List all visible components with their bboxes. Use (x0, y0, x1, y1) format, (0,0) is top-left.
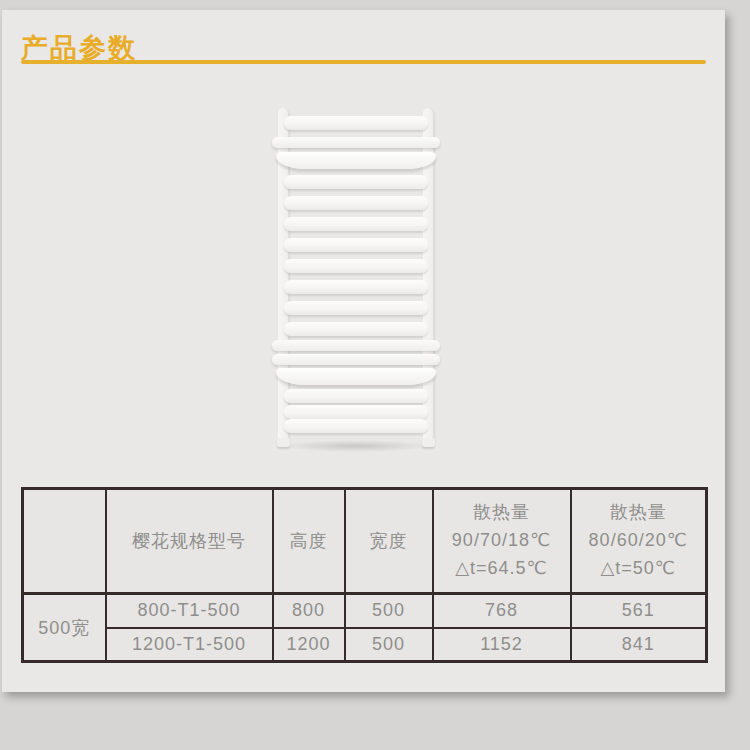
radiator-towel-rail-bottom-1 (272, 340, 440, 351)
radiator-bar (284, 175, 428, 189)
table-row: 500宽 800-T1-500 800 500 768 561 (23, 594, 707, 628)
title-underline (21, 60, 706, 64)
page-background: { "page": { "title": "产品参数" }, "colors":… (0, 0, 750, 750)
radiator-towel-bar-top (276, 152, 436, 169)
cell-height: 800 (273, 594, 345, 628)
product-card: 产品参数 (2, 10, 725, 692)
radiator-towel-bar-bottom (276, 368, 436, 385)
cell-heat-high: 1152 (433, 628, 571, 662)
row-group-label: 500宽 (23, 594, 106, 662)
cell-heat-low: 841 (571, 628, 707, 662)
radiator-shadow (280, 440, 432, 452)
header-heat-high: 散热量 90/70/18℃ △t=64.5℃ (433, 489, 571, 594)
radiator-bar (284, 322, 428, 336)
table-row: 1200-T1-500 1200 500 1152 841 (23, 628, 707, 662)
cell-width: 500 (345, 594, 433, 628)
radiator-bar (284, 405, 428, 419)
radiator-bar (284, 259, 428, 273)
cell-model: 1200-T1-500 (106, 628, 273, 662)
spec-table-header-row: 樱花规格型号 高度 宽度 散热量 90/70/18℃ △t=64.5℃ 散热量 … (23, 489, 707, 594)
radiator-bar (284, 389, 428, 403)
radiator-bar (284, 217, 428, 231)
cell-heat-low: 561 (571, 594, 707, 628)
radiator-image (272, 108, 440, 456)
header-model: 樱花规格型号 (106, 489, 273, 594)
header-corner (23, 489, 106, 594)
radiator-bar (284, 419, 428, 433)
cell-heat-high: 768 (433, 594, 571, 628)
radiator-bar (284, 301, 428, 315)
radiator-bar (284, 238, 428, 252)
cell-width: 500 (345, 628, 433, 662)
cell-model: 800-T1-500 (106, 594, 273, 628)
radiator-towel-rail-bottom-2 (272, 354, 440, 365)
radiator-foot-left (277, 438, 290, 447)
radiator-bar (284, 280, 428, 294)
header-height: 高度 (273, 489, 345, 594)
header-width: 宽度 (345, 489, 433, 594)
radiator-bar (284, 116, 428, 130)
header-heat-low: 散热量 80/60/20℃ △t=50℃ (571, 489, 707, 594)
radiator-foot-right (422, 438, 435, 447)
spec-table: 樱花规格型号 高度 宽度 散热量 90/70/18℃ △t=64.5℃ 散热量 … (21, 487, 708, 663)
radiator-bar (284, 196, 428, 210)
cell-height: 1200 (273, 628, 345, 662)
radiator-towel-rail-top (272, 137, 440, 148)
